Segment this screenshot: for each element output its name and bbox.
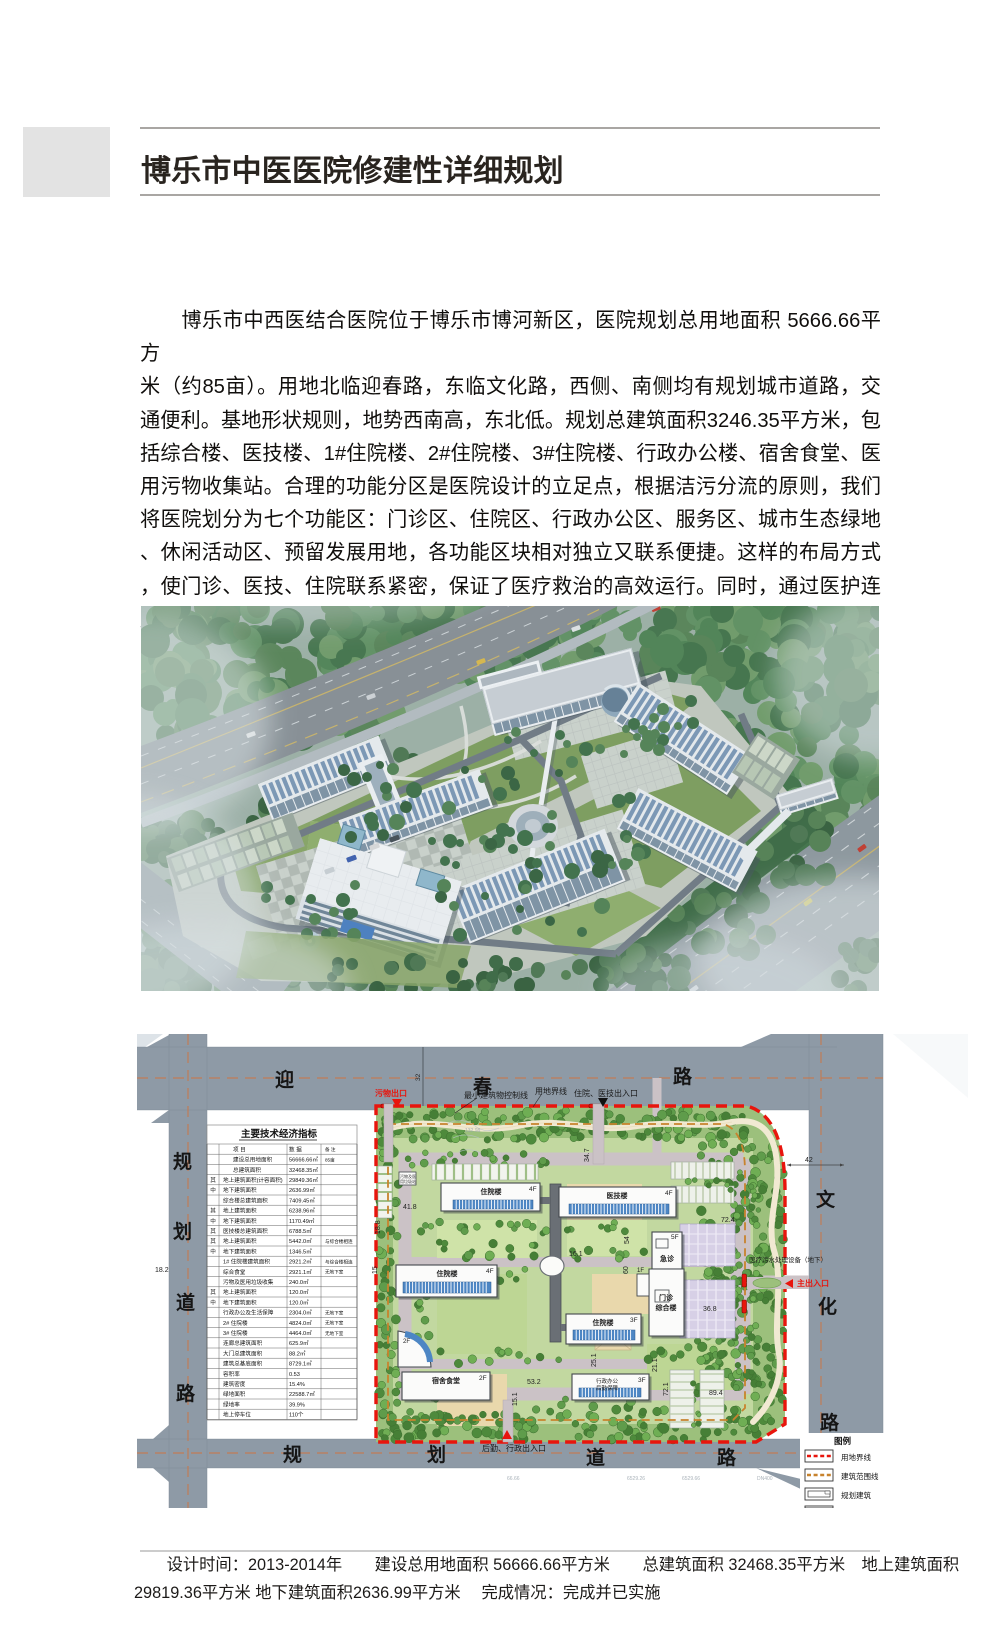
svg-text:行政办公: 行政办公: [596, 1377, 619, 1385]
svg-text:3# 住院楼: 3# 住院楼: [223, 1329, 248, 1337]
svg-text:道: 道: [586, 1446, 605, 1469]
svg-text:88.2㎡: 88.2㎡: [289, 1349, 306, 1357]
svg-text:中: 中: [210, 1298, 216, 1306]
svg-text:110个: 110个: [289, 1412, 304, 1419]
svg-text:120.0㎡: 120.0㎡: [289, 1288, 309, 1296]
svg-text:6529.26: 6529.26: [627, 1476, 645, 1482]
svg-text:无地下室: 无地下室: [325, 1320, 344, 1327]
svg-text:住院楼: 住院楼: [437, 1269, 458, 1278]
svg-text:其: 其: [210, 1207, 216, 1215]
svg-text:化: 化: [818, 1295, 837, 1318]
svg-text:1346.5㎡: 1346.5㎡: [289, 1247, 312, 1255]
svg-text:2636.99㎡: 2636.99㎡: [289, 1186, 315, 1194]
svg-text:路: 路: [717, 1446, 737, 1469]
svg-text:图例: 图例: [834, 1436, 852, 1446]
svg-text:56666.66㎡: 56666.66㎡: [289, 1156, 318, 1164]
svg-text:36.8: 36.8: [703, 1306, 717, 1313]
svg-text:42: 42: [805, 1157, 813, 1164]
svg-text:625.9㎡: 625.9㎡: [289, 1339, 309, 1347]
svg-text:132.98: 132.98: [465, 1128, 481, 1134]
svg-text:规: 规: [283, 1443, 302, 1466]
svg-text:建筑密度: 建筑密度: [223, 1380, 246, 1388]
svg-text:4464.0㎡: 4464.0㎡: [289, 1329, 312, 1337]
svg-text:地上建筑面积: 地上建筑面积: [223, 1207, 257, 1215]
svg-text:18.2: 18.2: [155, 1267, 169, 1274]
svg-text:89.4: 89.4: [709, 1390, 723, 1397]
svg-text:41.8: 41.8: [403, 1204, 417, 1211]
svg-text:72.4: 72.4: [721, 1217, 735, 1224]
svg-text:18.8: 18.8: [375, 1220, 382, 1234]
svg-text:数 据: 数 据: [289, 1145, 302, 1153]
svg-text:大门总建筑面积: 大门总建筑面积: [223, 1349, 263, 1357]
svg-text:地下建筑面积: 地下建筑面积: [223, 1186, 257, 1194]
svg-text:综合食堂: 综合食堂: [223, 1268, 246, 1276]
svg-text:住院楼: 住院楼: [593, 1318, 614, 1327]
svg-text:22588.7㎡: 22588.7㎡: [289, 1390, 315, 1398]
svg-text:春: 春: [473, 1075, 492, 1098]
svg-text:240.0㎡: 240.0㎡: [289, 1278, 309, 1286]
svg-text:其: 其: [210, 1288, 216, 1296]
svg-text:建筑范围线: 建筑范围线: [841, 1471, 879, 1481]
svg-text:划: 划: [427, 1443, 446, 1466]
svg-text:2921.2㎡: 2921.2㎡: [289, 1258, 312, 1266]
svg-text:60: 60: [623, 1266, 630, 1274]
svg-text:DN400: DN400: [757, 1476, 773, 1482]
svg-text:连廊总建筑面积: 连廊总建筑面积: [223, 1339, 263, 1347]
svg-text:规划建筑: 规划建筑: [841, 1490, 871, 1500]
svg-text:120.0㎡: 120.0㎡: [289, 1298, 309, 1306]
svg-text:15.1: 15.1: [512, 1392, 519, 1406]
svg-text:中: 中: [210, 1186, 216, 1194]
svg-text:道: 道: [176, 1291, 195, 1314]
svg-text:1F: 1F: [637, 1268, 644, 1274]
svg-text:2# 住院楼: 2# 住院楼: [223, 1319, 248, 1327]
svg-text:4824.0㎡: 4824.0㎡: [289, 1319, 312, 1327]
svg-text:72.1: 72.1: [663, 1382, 670, 1396]
svg-text:医技楼: 医技楼: [607, 1191, 628, 1200]
svg-text:32468.35㎡: 32468.35㎡: [289, 1166, 318, 1174]
svg-text:53.2: 53.2: [527, 1379, 541, 1386]
svg-text:项 目: 项 目: [233, 1146, 246, 1153]
svg-text:34.7: 34.7: [584, 1148, 591, 1162]
svg-text:综合楼总建筑面积: 综合楼总建筑面积: [223, 1196, 268, 1204]
svg-text:与综合楼相连: 与综合楼相连: [325, 1238, 353, 1245]
svg-text:与综合楼相连: 与综合楼相连: [325, 1258, 353, 1265]
svg-text:3F: 3F: [638, 1377, 646, 1384]
svg-text:25.1: 25.1: [591, 1353, 598, 1367]
svg-text:85亩: 85亩: [325, 1156, 335, 1163]
svg-text:污物及医用垃圾收集: 污物及医用垃圾收集: [223, 1278, 274, 1286]
svg-text:6238.96㎡: 6238.96㎡: [289, 1207, 315, 1215]
svg-text:3F: 3F: [630, 1317, 638, 1324]
svg-text:污物出口: 污物出口: [375, 1088, 407, 1098]
svg-text:4F: 4F: [665, 1190, 673, 1197]
svg-text:用地界线: 用地界线: [535, 1086, 567, 1096]
svg-text:绿地面积: 绿地面积: [223, 1390, 246, 1398]
svg-text:迎: 迎: [275, 1068, 294, 1091]
svg-text:66.66: 66.66: [507, 1476, 520, 1482]
svg-text:路: 路: [176, 1382, 196, 1405]
svg-text:主要技术经济指标: 主要技术经济指标: [241, 1128, 318, 1140]
svg-text:15: 15: [372, 1266, 379, 1274]
svg-text:39.9%: 39.9%: [289, 1402, 305, 1408]
svg-text:用地界线: 用地界线: [841, 1452, 871, 1462]
svg-text:总建筑面积: 总建筑面积: [233, 1166, 261, 1174]
svg-text:2304.0㎡: 2304.0㎡: [289, 1309, 312, 1317]
svg-text:地上建筑面积: 地上建筑面积: [223, 1237, 257, 1245]
svg-text:地上停车位: 地上停车位: [223, 1411, 251, 1419]
svg-text:行政办公及生活保障: 行政办公及生活保障: [223, 1309, 274, 1317]
svg-text:无地下室: 无地下室: [325, 1269, 344, 1276]
svg-text:急诊: 急诊: [660, 1254, 675, 1263]
svg-text:地上建筑面积(计容面积): 地上建筑面积(计容面积): [223, 1176, 283, 1184]
svg-text:路: 路: [673, 1065, 693, 1088]
svg-text:15.4%: 15.4%: [289, 1382, 305, 1388]
svg-text:规: 规: [173, 1150, 192, 1173]
svg-text:地下建筑面积: 地下建筑面积: [223, 1298, 257, 1306]
svg-text:住院、医技出入口: 住院、医技出入口: [574, 1088, 638, 1098]
svg-text:其: 其: [210, 1227, 216, 1235]
svg-text:用垃圾站: 用垃圾站: [400, 1178, 416, 1184]
svg-text:16.1: 16.1: [569, 1251, 583, 1258]
svg-text:1170.49㎡: 1170.49㎡: [289, 1217, 315, 1225]
svg-text:2F: 2F: [479, 1375, 487, 1382]
svg-text:后勤、行政出入口: 后勤、行政出入口: [482, 1443, 546, 1453]
svg-text:综合楼: 综合楼: [656, 1303, 677, 1312]
svg-text:门诊: 门诊: [659, 1293, 674, 1302]
svg-text:容积率: 容积率: [223, 1370, 240, 1378]
svg-text:5F: 5F: [671, 1234, 679, 1241]
svg-text:21.1: 21.1: [652, 1358, 659, 1372]
svg-text:4F: 4F: [486, 1268, 494, 1275]
svg-text:地上建筑面积: 地上建筑面积: [223, 1288, 257, 1296]
svg-text:备 注: 备 注: [325, 1146, 336, 1153]
svg-text:中: 中: [210, 1217, 216, 1225]
svg-text:7409.45㎡: 7409.45㎡: [289, 1196, 315, 1204]
svg-text:绿地率: 绿地率: [223, 1400, 240, 1408]
svg-text:文: 文: [816, 1188, 836, 1211]
svg-text:住院楼: 住院楼: [481, 1187, 502, 1196]
svg-text:地下建筑面积: 地下建筑面积: [223, 1247, 257, 1255]
svg-text:54: 54: [624, 1236, 631, 1244]
svg-text:其: 其: [210, 1237, 216, 1245]
svg-text:建筑总基底面积: 建筑总基底面积: [223, 1360, 263, 1368]
svg-text:宿舍食堂: 宿舍食堂: [432, 1376, 460, 1385]
svg-text:4F: 4F: [529, 1186, 537, 1193]
svg-text:医疗污水处理设备（地下）: 医疗污水处理设备（地下）: [749, 1255, 827, 1264]
svg-text:1# 住院楼建筑面积: 1# 住院楼建筑面积: [223, 1258, 270, 1266]
svg-text:2F: 2F: [403, 1339, 410, 1345]
svg-text:路: 路: [820, 1411, 840, 1434]
svg-text:6529.66: 6529.66: [682, 1476, 700, 1482]
svg-text:后勤保障: 后勤保障: [596, 1384, 619, 1392]
svg-text:8729.1㎡: 8729.1㎡: [289, 1360, 312, 1368]
svg-text:医技楼总建筑面积: 医技楼总建筑面积: [223, 1227, 268, 1235]
svg-text:0.53: 0.53: [289, 1372, 300, 1378]
svg-text:29849.36㎡: 29849.36㎡: [289, 1176, 318, 1184]
svg-text:中: 中: [210, 1247, 216, 1255]
svg-text:地下建筑面积: 地下建筑面积: [223, 1217, 257, 1225]
svg-text:建设总用地面积: 建设总用地面积: [233, 1156, 273, 1164]
svg-text:其: 其: [210, 1176, 216, 1184]
svg-text:6788.5㎡: 6788.5㎡: [289, 1227, 312, 1235]
svg-text:2921.1㎡: 2921.1㎡: [289, 1268, 312, 1276]
svg-text:5442.0㎡: 5442.0㎡: [289, 1237, 312, 1245]
svg-text:无地下室: 无地下室: [325, 1309, 344, 1316]
svg-text:划: 划: [173, 1220, 192, 1243]
svg-text:主出入口: 主出入口: [797, 1278, 829, 1288]
svg-text:无地下室: 无地下室: [325, 1330, 344, 1337]
svg-text:32: 32: [415, 1073, 422, 1081]
